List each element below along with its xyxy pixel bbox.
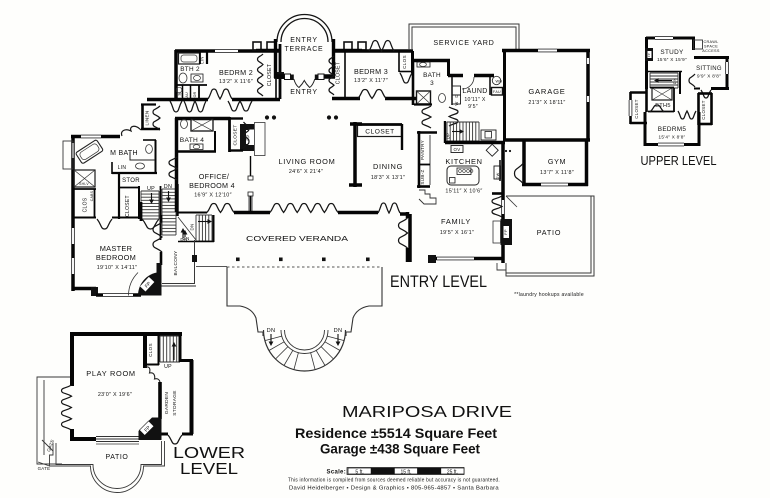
svg-text:LIN: LIN [118,165,127,171]
svg-text:PATIO: PATIO [537,228,562,237]
svg-text:LAUND: LAUND [462,88,487,95]
svg-text:CLOS: CLOS [83,197,89,212]
svg-text:Residence ±5514 Square Feet: Residence ±5514 Square Feet [295,425,497,441]
svg-text:13′7″ X 11′8″: 13′7″ X 11′8″ [540,170,574,176]
svg-text:13′2″ X 11′7″: 13′2″ X 11′7″ [354,78,388,84]
svg-text:16′9″ X 12′10″: 16′9″ X 12′10″ [194,193,232,199]
svg-text:STORAGE: STORAGE [172,390,178,415]
svg-text:ACCESS: ACCESS [702,49,720,53]
svg-text:CLOSET: CLOSET [233,125,239,146]
svg-text:10 ft.: 10 ft. [377,469,388,475]
svg-text:**laundry hookups available: **laundry hookups available [514,292,584,298]
svg-text:FAU: FAU [493,90,501,94]
svg-text:CLOS: CLOS [402,55,407,69]
svg-text:SHLV: SHLV [79,182,89,186]
svg-text:BEDROOM: BEDROOM [96,253,136,262]
svg-text:M BATH: M BATH [110,150,138,157]
svg-text:OFFICE/: OFFICE/ [199,172,229,181]
svg-text:KITCHEN: KITCHEN [445,157,482,166]
svg-text:DN: DN [334,328,343,334]
svg-text:MARIPOSA DRIVE: MARIPOSA DRIVE [342,404,512,421]
svg-text:SUB-Z: SUB-Z [420,169,425,184]
svg-text:BEDRM 2: BEDRM 2 [219,68,253,77]
svg-text:9′5″: 9′5″ [468,104,478,110]
svg-text:21′3″ X 18′11″: 21′3″ X 18′11″ [528,100,565,106]
svg-text:19′5″ X 16′1″: 19′5″ X 16′1″ [440,230,474,236]
svg-text:DN: DN [267,328,276,334]
svg-text:David Heidelberger • Design &: David Heidelberger • Design & Graphics •… [289,486,499,492]
svg-text:TERRACE: TERRACE [284,46,323,53]
svg-text:SITTING: SITTING [696,66,722,72]
svg-text:UP: UP [446,133,451,140]
svg-text:Scale:: Scale: [327,470,346,476]
svg-text:UPPER LEVEL: UPPER LEVEL [641,153,717,168]
svg-text:STOR: STOR [122,178,140,184]
svg-text:BEDROOM 4: BEDROOM 4 [189,181,235,190]
svg-text:FP: FP [647,53,651,57]
svg-text:SPACE: SPACE [704,45,718,49]
svg-text:ENTRY: ENTRY [290,37,318,44]
svg-text:LIN: LIN [200,56,205,63]
svg-text:BEDRM 3: BEDRM 3 [354,67,388,76]
svg-text:FP: FP [503,229,508,235]
svg-text:GARDEN: GARDEN [164,392,170,415]
svg-text:MASTER: MASTER [100,244,133,253]
svg-text:13′2″ X 11′6″: 13′2″ X 11′6″ [219,79,253,85]
svg-text:BEDRM5: BEDRM5 [658,126,687,133]
svg-text:BATH: BATH [423,72,441,79]
svg-text:19′10″ X 14′11″: 19′10″ X 14′11″ [97,265,138,271]
svg-text:ENTRY LEVEL: ENTRY LEVEL [390,273,487,291]
svg-text:15 ft.: 15 ft. [400,469,411,475]
svg-text:SERVICE YARD: SERVICE YARD [433,38,494,47]
svg-text:LOWER: LOWER [173,445,245,462]
svg-text:LEVEL: LEVEL [180,461,238,478]
svg-text:CABS: CABS [90,190,94,201]
svg-text:WH: WH [496,80,503,84]
svg-text:CLOSET: CLOSET [125,195,131,217]
svg-text:15′11″ X 10′6″: 15′11″ X 10′6″ [445,189,482,195]
svg-text:23′0″ X 19′6″: 23′0″ X 19′6″ [98,392,132,398]
svg-text:DN: DN [672,78,677,84]
svg-text:LIVING ROOM: LIVING ROOM [279,157,336,166]
svg-text:PANTRY: PANTRY [420,140,425,160]
svg-text:Garage ±438 Square Feet: Garage ±438 Square Feet [320,441,480,457]
svg-text:CRAWL: CRAWL [703,40,718,44]
svg-text:D: D [454,94,459,97]
svg-text:OV: OV [454,147,461,152]
svg-text:STUDY: STUDY [660,49,684,56]
svg-text:W: W [454,101,459,105]
svg-text:GATE: GATE [38,466,51,471]
svg-text:BTH 2: BTH 2 [180,66,200,73]
svg-text:FAMILY: FAMILY [441,217,471,226]
svg-text:PATIO: PATIO [106,454,129,461]
svg-text:15′6″ X 15′9″: 15′6″ X 15′9″ [657,57,687,62]
svg-text:18′3″ X 13′1″: 18′3″ X 13′1″ [371,175,405,181]
svg-text:3: 3 [430,80,434,87]
svg-text:DW: DW [496,172,500,179]
svg-text:15′4″ X 8′8″: 15′4″ X 8′8″ [659,135,686,140]
svg-text:20 ft.: 20 ft. [424,469,435,475]
svg-text:BALCONY: BALCONY [173,250,179,276]
svg-text:DINING: DINING [373,162,403,171]
svg-text:9′9″ X 8′8″: 9′9″ X 8′8″ [697,74,721,79]
svg-text:CLOSET: CLOSET [267,63,273,86]
svg-text:PLAY ROOM: PLAY ROOM [86,369,136,378]
svg-text:UP: UP [147,186,155,192]
svg-text:24′6″ X 21′4″: 24′6″ X 21′4″ [289,169,323,175]
svg-text:BATH 4: BATH 4 [180,137,204,144]
svg-text:DN: DN [164,184,172,190]
svg-text:GARAGE: GARAGE [528,87,565,96]
svg-text:CLOSET: CLOSET [701,100,706,119]
svg-text:5 ft.: 5 ft. [355,469,363,475]
svg-text:UP: UP [164,364,172,370]
svg-text:CLOS: CLOS [148,343,153,357]
svg-text:GYM: GYM [548,157,566,166]
svg-text:25 ft.: 25 ft. [447,469,458,475]
svg-text:CLOSET: CLOSET [365,129,394,136]
svg-text:ENTRY: ENTRY [290,89,318,96]
svg-text:DN: DN [190,224,195,231]
svg-text:COVERED VERANDA: COVERED VERANDA [246,234,348,243]
svg-text:DN: DN [180,237,187,242]
svg-text:(W): (W) [176,93,182,97]
svg-text:CLOSET: CLOSET [634,99,639,118]
svg-text:BTH5: BTH5 [655,103,671,109]
svg-text:This information is compiled f: This information is compiled from source… [288,478,500,484]
svg-text:CLOSET: CLOSET [336,61,342,84]
svg-text:10′11″ X: 10′11″ X [464,97,486,103]
svg-text:LINEN: LINEN [145,110,150,125]
